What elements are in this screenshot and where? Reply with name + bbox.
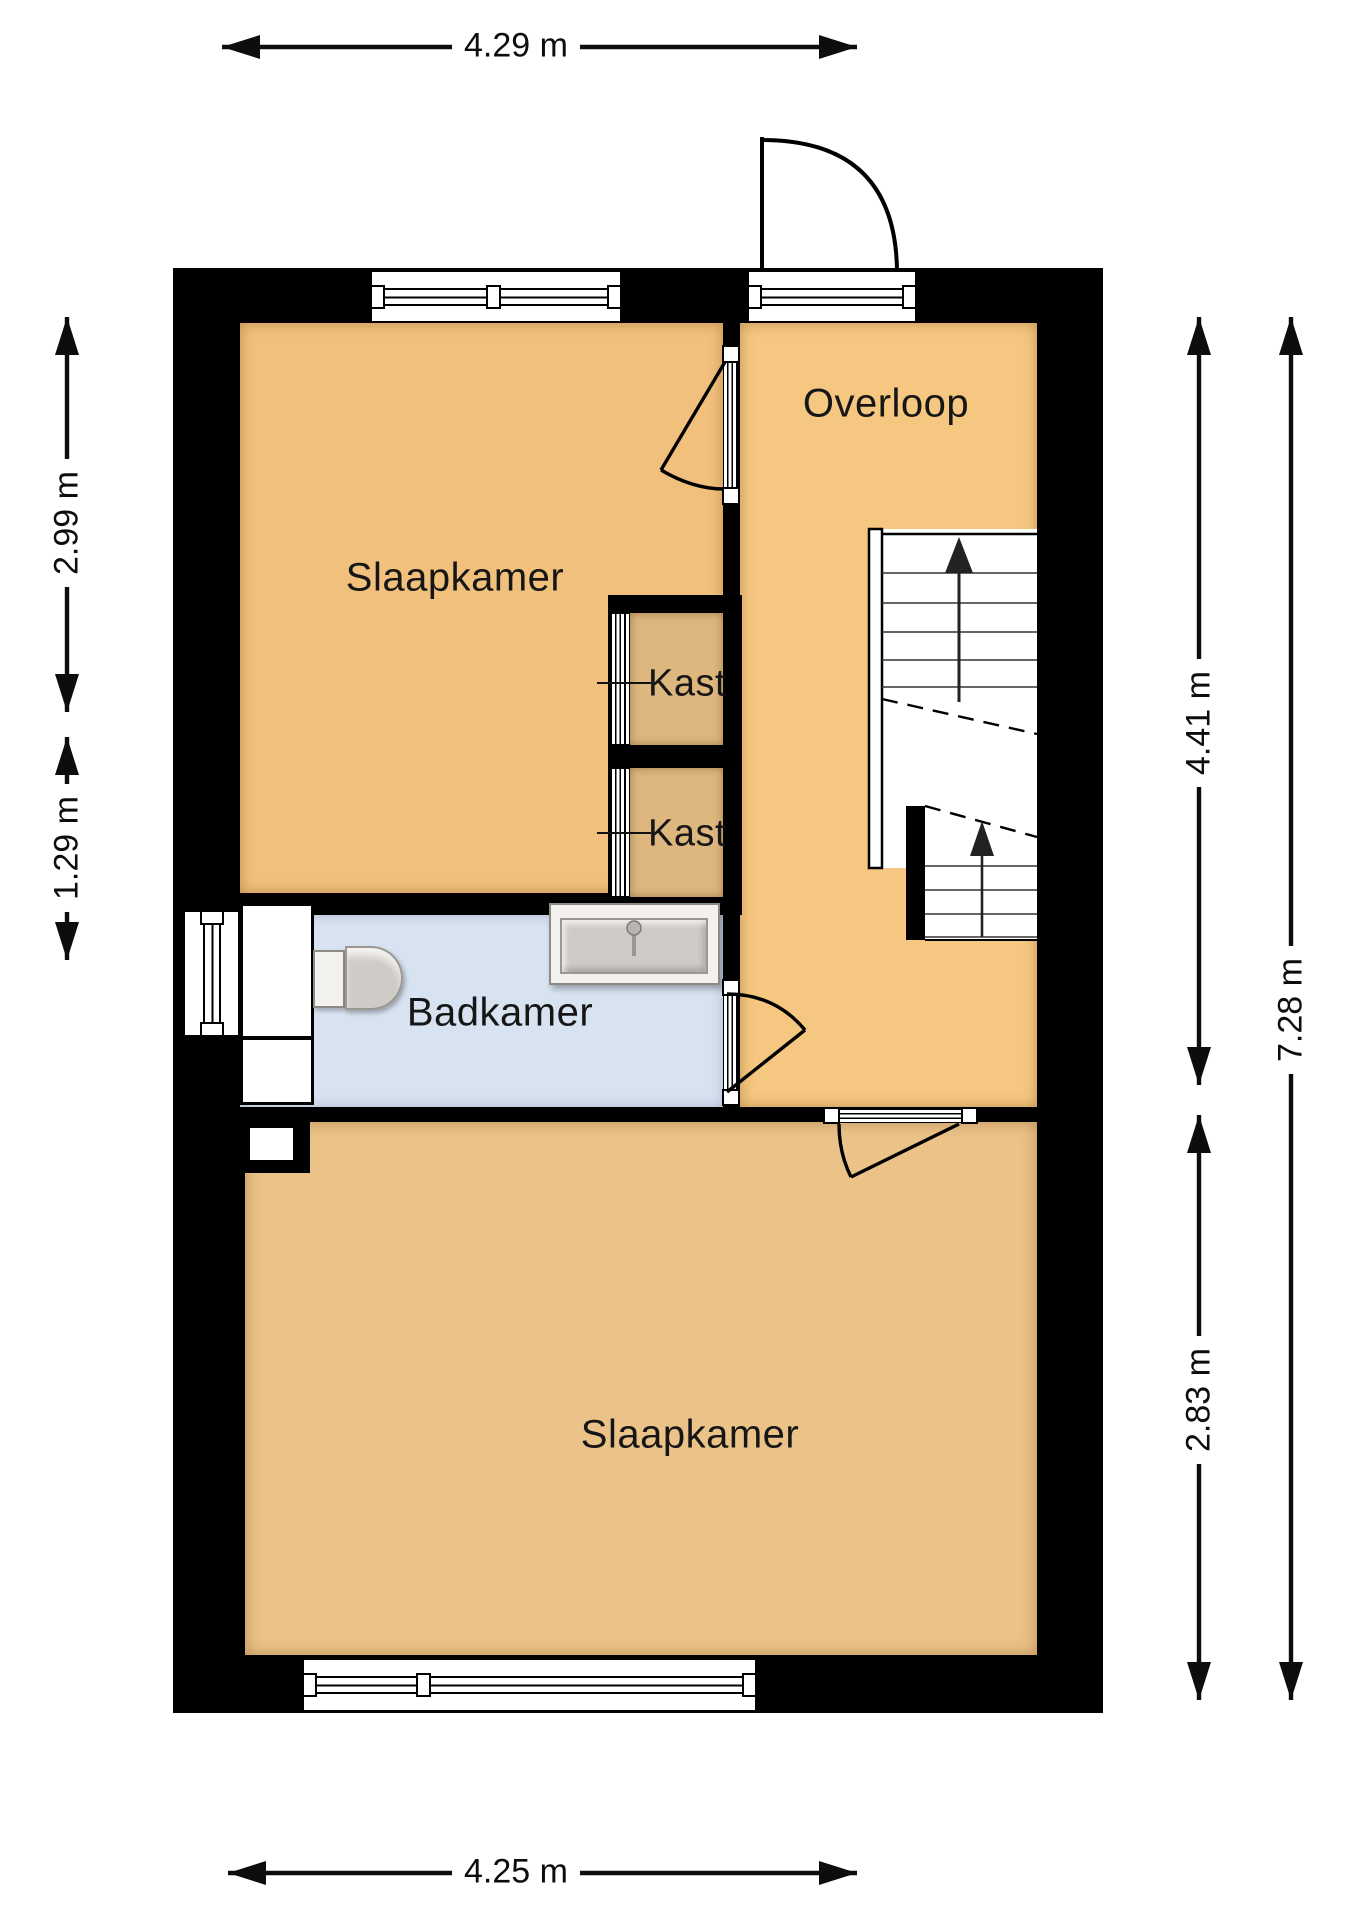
entry-door-swing [762,137,897,272]
dimension-right-lower: 2.83 m [1178,1336,1221,1464]
window-glass-lines [304,1676,755,1694]
door-slaapkamer-2 [839,1109,962,1123]
label-badkamer: Badkamer [407,991,593,1036]
door-jamb [722,1089,740,1106]
window-glass-lines [749,288,915,306]
label-overloop: Overloop [803,382,969,427]
door-jamb [722,979,740,996]
window-post [370,285,385,309]
window-post [486,285,501,309]
window-post [607,285,622,309]
room-overloop [740,323,1037,1107]
shower-cabinet-symbol [240,903,314,1039]
window-post [747,285,762,309]
label-kast-1: Kast [648,663,726,706]
door-jamb [961,1107,978,1124]
window-bathroom-left [183,910,240,1037]
floorplan-canvas: Slaapkamer Overloop Kast Kast Badkamer S… [0,0,1358,1920]
window-post [902,285,917,309]
door-kast-1 [611,613,630,745]
sink-basin [560,918,708,974]
cabinet-symbol [240,1037,314,1105]
door-jamb [823,1107,840,1124]
dimension-right-upper: 4.41 m [1178,659,1221,787]
window-post [416,1673,431,1697]
door-slaapkamer-1 [723,362,739,488]
dimension-right-total: 7.28 m [1270,946,1313,1074]
dimension-left-upper: 2.99 m [46,459,89,587]
door-badkamer [723,995,739,1090]
label-slaapkamer-2: Slaapkamer [581,1413,799,1458]
door-jamb [722,487,740,505]
window-post [200,1022,224,1037]
window-top-right [747,270,917,323]
door-jamb [722,345,740,363]
window-top-left [370,270,622,323]
dimension-bottom: 4.25 m [452,1851,580,1894]
dimension-left-lower: 1.29 m [46,784,89,912]
dimension-top: 4.29 m [452,25,580,68]
window-post [742,1673,757,1697]
label-slaapkamer-1: Slaapkamer [346,556,564,601]
duct-niche [250,1128,293,1160]
window-bottom [302,1658,757,1712]
room-slaapkamer-2 [245,1122,1037,1655]
window-post [200,910,224,925]
window-post [302,1673,317,1697]
label-kast-2: Kast [648,813,726,856]
toilet-tank-symbol [313,950,345,1008]
door-kast-2 [611,768,630,897]
window-glass-lines [203,912,221,1035]
